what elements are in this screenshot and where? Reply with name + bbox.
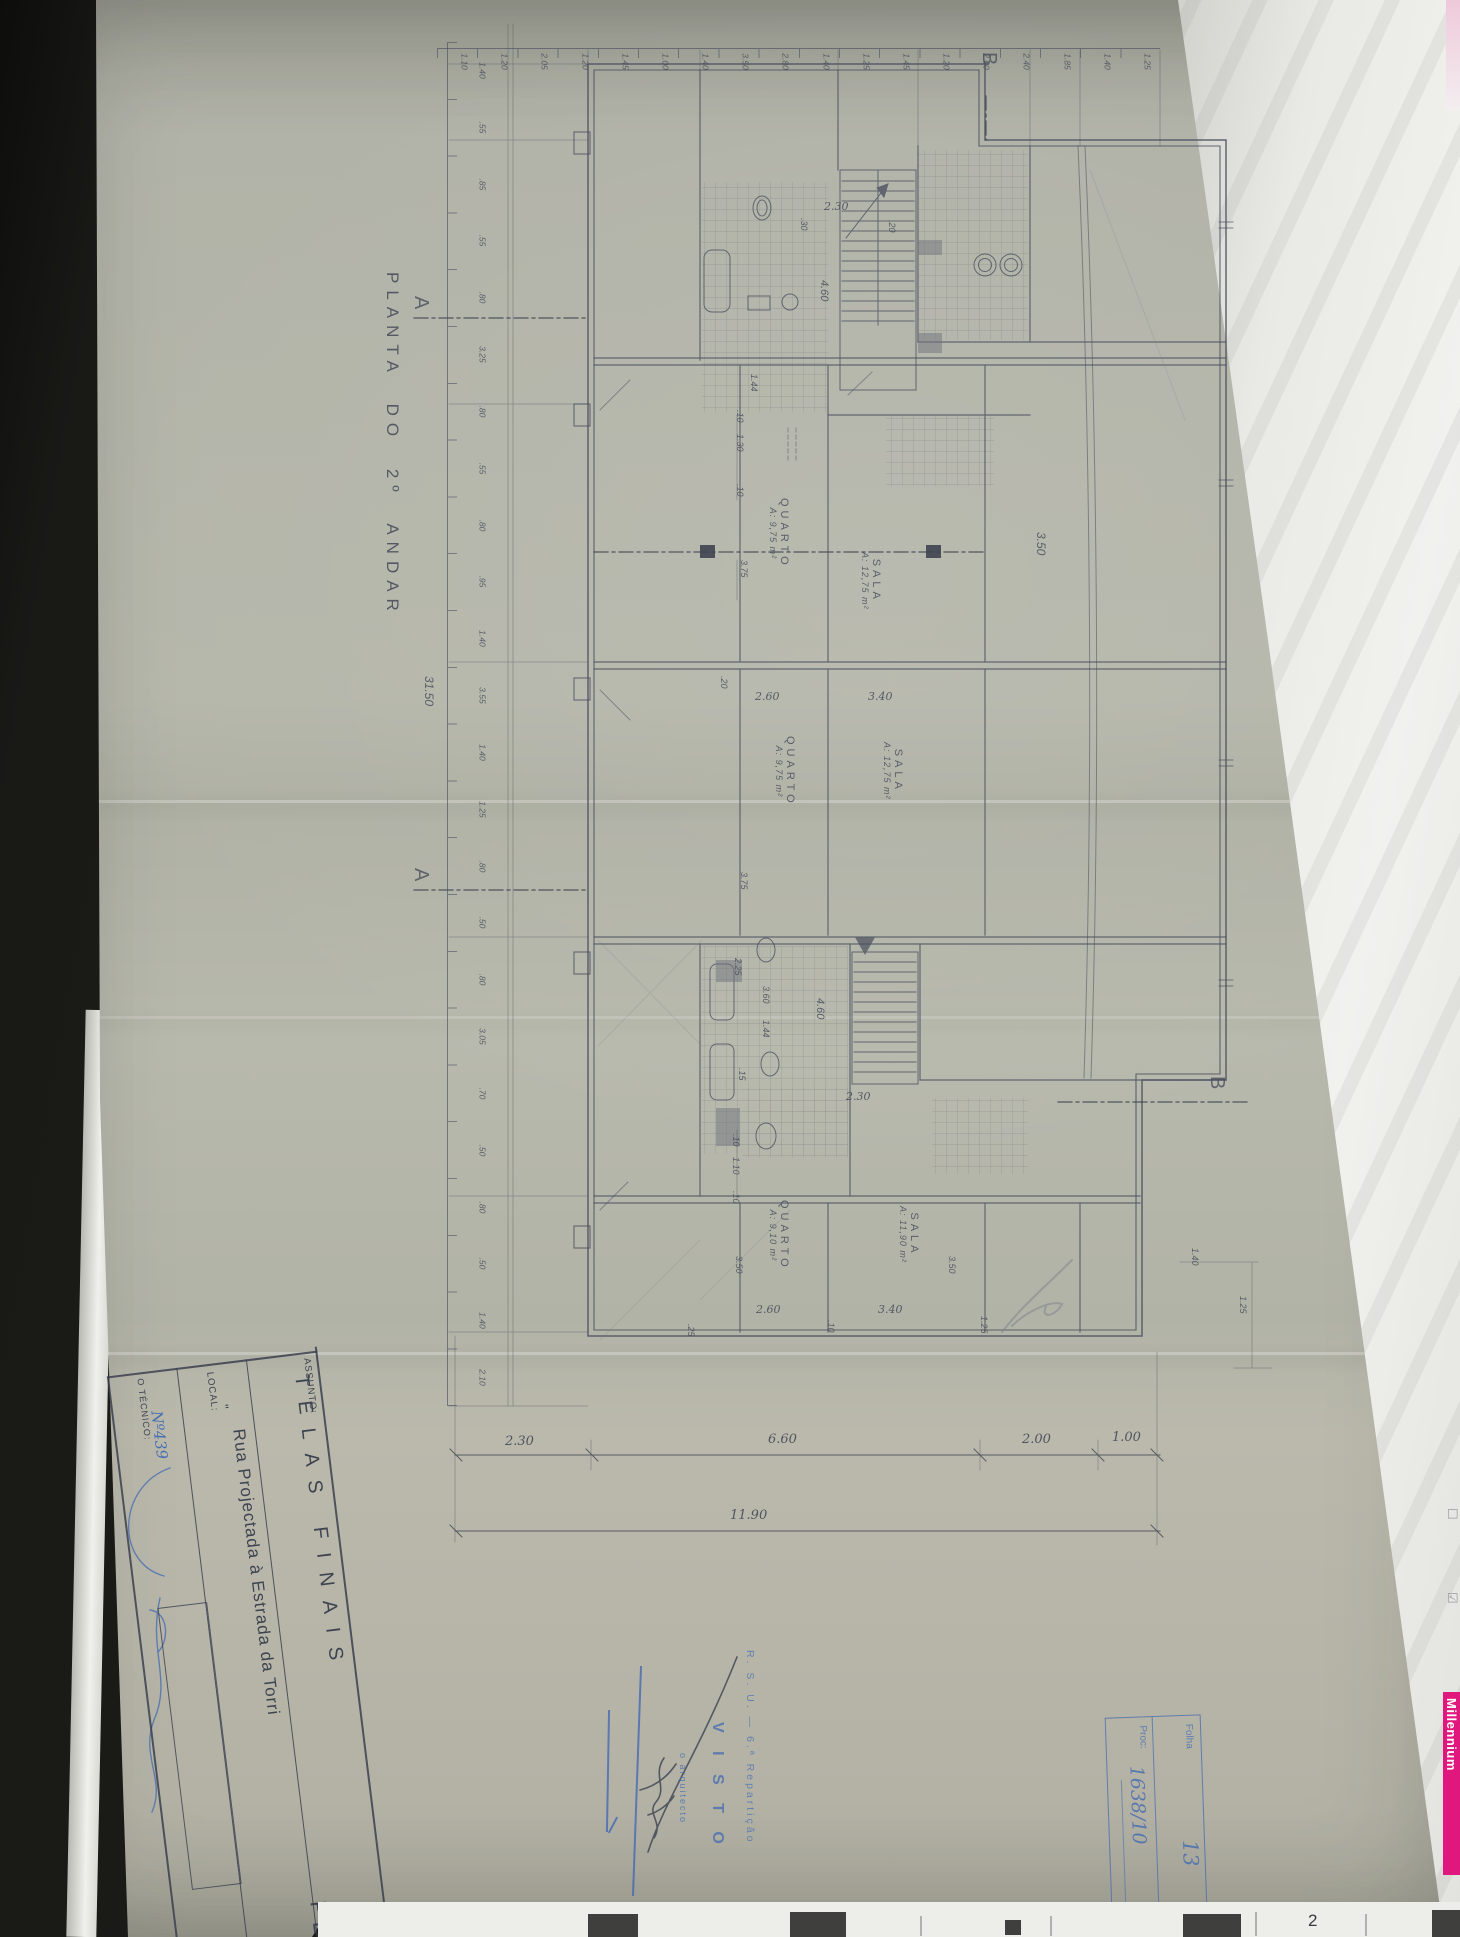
dimension-label: 1.40 bbox=[1190, 1248, 1200, 1266]
dimension-label: 4.60 bbox=[814, 998, 826, 1019]
dimension-label: .50 bbox=[431, 1253, 488, 1275]
dimension-label: .25 bbox=[686, 1324, 696, 1337]
room-label-quarto-2: QUARTO A: 9,75 m² bbox=[774, 736, 796, 807]
local-value: Rua Projectada à Estrada da Torri bbox=[228, 1428, 283, 1717]
dimension-total-left: 31.50 bbox=[422, 676, 436, 706]
dimension-label: .80 bbox=[431, 287, 488, 309]
dimension-label: 1.40 bbox=[806, 41, 831, 81]
dimension-label: .10 bbox=[735, 484, 745, 497]
dimension-label: .15 bbox=[737, 1068, 747, 1081]
dimension-label: 1.45 bbox=[605, 41, 630, 81]
dimension-label: 2.40 bbox=[1007, 41, 1032, 81]
proc-number-handwritten: 1638/10 bbox=[1125, 1765, 1150, 1845]
dimension-label: .10 bbox=[826, 1320, 836, 1333]
dimension-label: 1.25 bbox=[1128, 41, 1153, 81]
dimension-label: 1.45 bbox=[886, 41, 911, 81]
signature-box bbox=[157, 1602, 241, 1890]
room-label-sala-1: SALA A: 12,75 m² bbox=[860, 552, 882, 610]
dimension-label: .80 bbox=[431, 400, 488, 422]
dimension-label: 2.30 bbox=[824, 200, 849, 213]
room-name: SALA bbox=[908, 1206, 920, 1263]
dimension-label: .80 bbox=[431, 1196, 488, 1218]
stamp-visto-word: V I S T O bbox=[708, 1722, 726, 1851]
dimension-label: 3.75 bbox=[739, 872, 749, 890]
millennium-brand-text: Millennium bbox=[1444, 1698, 1459, 1771]
room-area: A: 9,75 m² bbox=[774, 736, 784, 807]
folha-proc-stamp-box: Proc: Folha 1638/10 13 bbox=[1105, 1714, 1208, 1911]
dimension-label: 1.40 bbox=[431, 741, 488, 763]
room-label-sala-2: SALA A: 12,75 m² bbox=[882, 742, 904, 800]
sheet-number-handwritten: 13 bbox=[1178, 1839, 1203, 1867]
stair-lower bbox=[852, 938, 918, 1084]
barcode-line bbox=[1050, 1916, 1052, 1936]
dimension-label: 3.50 bbox=[726, 41, 751, 81]
dimension-label: 1.85 bbox=[1047, 41, 1072, 81]
dimension-label: 2.00 bbox=[1022, 1432, 1051, 1447]
photographed-floor-plan: PLANTA DO 2º ANDAR A A B B QUARTO A: 9,7… bbox=[0, 0, 1460, 1937]
dimension-label: .70 bbox=[431, 1082, 488, 1104]
dimension-label: 1.44 bbox=[761, 1020, 771, 1038]
dimension-label: 3.50 bbox=[1034, 532, 1048, 555]
barcode-line bbox=[1255, 1912, 1257, 1936]
section-marker-b2: B bbox=[1205, 1076, 1228, 1089]
room-area: A: 12,75 m² bbox=[882, 742, 892, 800]
dimension-chain-left: 1.40.55.85.55.803.25.80.55.80.951.403.55… bbox=[447, 42, 471, 1406]
room-area: A: 9,75 m² bbox=[768, 498, 778, 569]
dimension-label: 2.80 bbox=[766, 41, 791, 81]
millennium-brand-bar: Millennium bbox=[1443, 1692, 1460, 1875]
room-name: QUARTO bbox=[778, 1200, 790, 1271]
dimension-label: 4.60 bbox=[818, 280, 830, 301]
room-area: A: 12,75 m² bbox=[860, 552, 870, 610]
dimension-label: .55 bbox=[431, 230, 488, 252]
dimension-label: .80 bbox=[431, 855, 488, 877]
dimension-label: 1.00 bbox=[1112, 1430, 1141, 1445]
barcode-block bbox=[1005, 1920, 1021, 1935]
dimension-label: .80 bbox=[431, 969, 488, 991]
dimension-label: .10 bbox=[731, 1134, 741, 1147]
dimension-chain-top: 1.101.202.051.201.451.001.403.502.801.40… bbox=[437, 48, 1160, 74]
dimension-label: 1.25 bbox=[431, 798, 488, 820]
dimension-label: 1.40 bbox=[686, 41, 711, 81]
dimension-label: 2.30 bbox=[846, 1090, 871, 1103]
dimension-label: .55 bbox=[431, 457, 488, 479]
dimension-label: .30 bbox=[799, 218, 809, 231]
barcode-block bbox=[588, 1914, 638, 1937]
local-ditto-mark: " bbox=[216, 1404, 231, 1410]
dimension-label: 3.05 bbox=[431, 1025, 488, 1047]
dimension-label: 1.10 bbox=[731, 1157, 741, 1175]
dimension-label: .95 bbox=[431, 571, 488, 593]
section-marker-a2: A bbox=[409, 868, 432, 881]
checkbox-checked-icon: ☑ bbox=[1444, 1592, 1460, 1604]
dimension-label: 1.40 bbox=[431, 59, 488, 81]
dimension-label: 1.20 bbox=[485, 41, 510, 81]
dimension-label: 2.60 bbox=[756, 1303, 781, 1316]
room-label-sala-3: SALA A: 11,90 m² bbox=[898, 1206, 920, 1263]
dimension-label: 6.60 bbox=[768, 1432, 797, 1447]
stair-upper bbox=[840, 170, 916, 390]
dimension-label: 3.60 bbox=[761, 986, 771, 1004]
extension-lines bbox=[449, 24, 1272, 1545]
room-label-quarto-3: QUARTO A: 9,10 m² bbox=[768, 1200, 790, 1271]
dimension-label: 2.00 bbox=[967, 41, 992, 81]
dimension-label: .50 bbox=[431, 1139, 488, 1161]
dimension-label: 1.44 bbox=[749, 374, 759, 392]
barcode-block bbox=[1432, 1910, 1460, 1937]
room-area: A: 9,10 m² bbox=[768, 1200, 778, 1271]
dimension-total-bottom: 11.90 bbox=[730, 1508, 767, 1523]
barcode-block bbox=[790, 1912, 846, 1937]
bottom-background-strip bbox=[318, 1902, 1460, 1937]
dimension-label: 1.30 bbox=[735, 434, 745, 452]
dimension-label: 1.20 bbox=[927, 41, 952, 81]
room-name: SALA bbox=[870, 552, 882, 610]
stamp-org-line: R. S. U. — 6.ª Repartição bbox=[744, 1650, 756, 1844]
dimension-label: 2.30 bbox=[505, 1434, 534, 1449]
dimension-label: 2.10 bbox=[431, 1366, 488, 1388]
dimension-label: .50 bbox=[431, 912, 488, 934]
dimension-label: 3.50 bbox=[947, 1256, 957, 1274]
dimension-label: 3.40 bbox=[878, 1303, 903, 1316]
dimension-label: 3.55 bbox=[431, 685, 488, 707]
outer-walls bbox=[588, 64, 1226, 1336]
tecnico-number-handwritten: Nº439 bbox=[147, 1410, 171, 1461]
dimension-label: .80 bbox=[431, 514, 488, 536]
dimension-label: 1.00 bbox=[645, 41, 670, 81]
room-label-quarto-1: QUARTO A: 9,75 m² bbox=[768, 498, 790, 569]
interior-walls bbox=[594, 70, 1226, 1332]
dimension-label: 1.40 bbox=[431, 628, 488, 650]
dimension-label: 1.20 bbox=[565, 41, 590, 81]
dimension-label: .85 bbox=[431, 173, 488, 195]
dimension-label: .55 bbox=[431, 116, 488, 138]
pencil-scribble bbox=[1002, 1260, 1072, 1332]
dimension-label: .10 bbox=[735, 410, 745, 423]
barcode-block bbox=[1183, 1914, 1241, 1937]
dimension-label: 2.25 bbox=[733, 958, 743, 976]
dimension-label: 3.25 bbox=[431, 344, 488, 366]
room-name: QUARTO bbox=[778, 498, 790, 569]
dimension-label: .20 bbox=[719, 676, 729, 689]
proc-label: Proc: bbox=[1137, 1725, 1149, 1749]
balcony-edge bbox=[1078, 146, 1097, 1078]
barcode-line bbox=[920, 1916, 922, 1936]
barcode-line bbox=[1365, 1914, 1367, 1936]
dimension-label: 1.25 bbox=[1238, 1296, 1248, 1314]
bottom-dimension-lines bbox=[450, 1449, 1163, 1537]
dimension-label: 3.75 bbox=[739, 560, 749, 578]
bottom-strip-digit: 2 bbox=[1308, 1911, 1317, 1931]
dimension-label: .20 bbox=[887, 220, 897, 233]
dimension-label: .10 bbox=[731, 1191, 741, 1204]
section-marker-a1: A bbox=[409, 296, 432, 309]
folha-box-divider bbox=[1152, 1717, 1160, 1909]
dimension-label: 1.25 bbox=[979, 1316, 989, 1334]
room-name: SALA bbox=[892, 742, 904, 800]
dimension-label: 1.40 bbox=[1087, 41, 1112, 81]
dimension-label: 1.25 bbox=[846, 41, 871, 81]
dimension-label: 3.50 bbox=[734, 1256, 744, 1274]
dimension-label: 1.40 bbox=[431, 1310, 488, 1332]
dimension-label: 2.05 bbox=[525, 41, 550, 81]
room-name: QUARTO bbox=[784, 736, 796, 807]
checkbox-icon: ☐ bbox=[1444, 1508, 1460, 1520]
stamp-role-line: o arquitecto bbox=[678, 1753, 688, 1824]
room-area: A: 11,90 m² bbox=[898, 1206, 908, 1263]
dimension-label: 2.60 bbox=[755, 690, 780, 703]
drawing-title: PLANTA DO 2º ANDAR bbox=[382, 272, 402, 618]
folha-label: Folha bbox=[1183, 1724, 1195, 1749]
dimension-label: 3.40 bbox=[868, 690, 893, 703]
